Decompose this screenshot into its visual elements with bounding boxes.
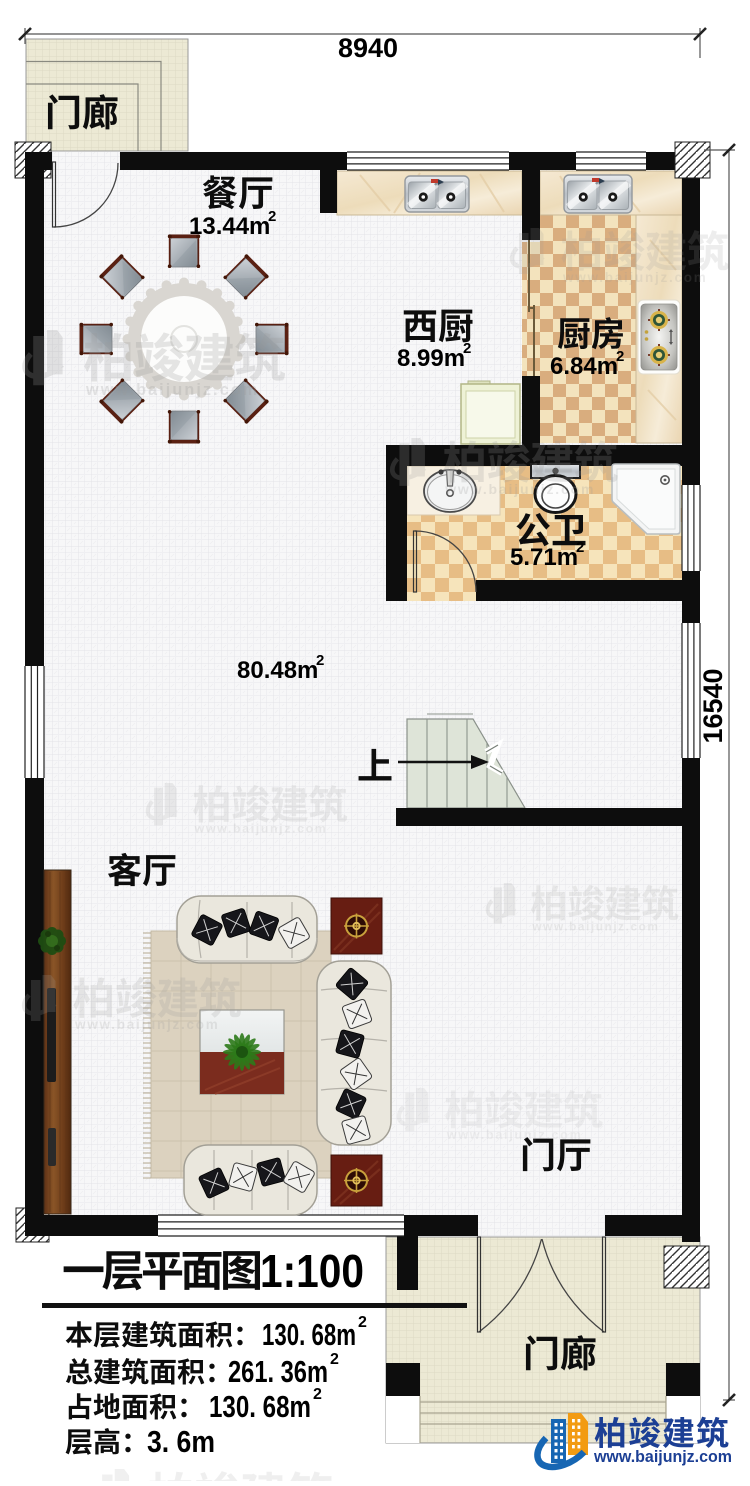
svg-text:130. 68m: 130. 68m — [209, 1389, 311, 1424]
svg-text:www.baijunjz.com: www.baijunjz.com — [593, 1448, 732, 1466]
svg-text:130. 68m: 130. 68m — [262, 1317, 356, 1352]
svg-text:2: 2 — [313, 1386, 322, 1403]
svg-text:www.baijunjz.com: www.baijunjz.com — [446, 1128, 583, 1142]
svg-text:6.84m: 6.84m — [550, 353, 618, 380]
svg-text:2: 2 — [316, 652, 324, 669]
svg-text:2: 2 — [616, 348, 624, 365]
svg-text:2: 2 — [330, 1351, 339, 1368]
svg-text:www.baijunjz.com: www.baijunjz.com — [85, 381, 259, 399]
svg-text:2: 2 — [463, 340, 471, 357]
svg-text:80.48m: 80.48m — [237, 657, 318, 684]
svg-text:16540: 16540 — [698, 668, 728, 743]
svg-text:2: 2 — [576, 539, 584, 556]
svg-text:8940: 8940 — [338, 33, 398, 63]
svg-text:1:100: 1:100 — [260, 1245, 364, 1297]
svg-text:www.baijunjz.com: www.baijunjz.com — [74, 1017, 220, 1032]
svg-text:www.baijunjz.com: www.baijunjz.com — [531, 920, 659, 934]
svg-text:5.71m: 5.71m — [510, 544, 578, 571]
svg-text:2: 2 — [358, 1314, 367, 1331]
svg-text:2: 2 — [268, 208, 276, 225]
svg-text:13.44m: 13.44m — [189, 213, 270, 240]
svg-text:3. 6m: 3. 6m — [147, 1424, 215, 1459]
svg-text:8.99m: 8.99m — [397, 345, 465, 372]
svg-text:261. 36m: 261. 36m — [228, 1354, 328, 1389]
svg-text:www.baijunjz.com: www.baijunjz.com — [562, 270, 708, 285]
svg-text:www.baijunjz.com: www.baijunjz.com — [194, 822, 328, 836]
svg-text:www.baijunjz.com: www.baijunjz.com — [444, 481, 595, 497]
